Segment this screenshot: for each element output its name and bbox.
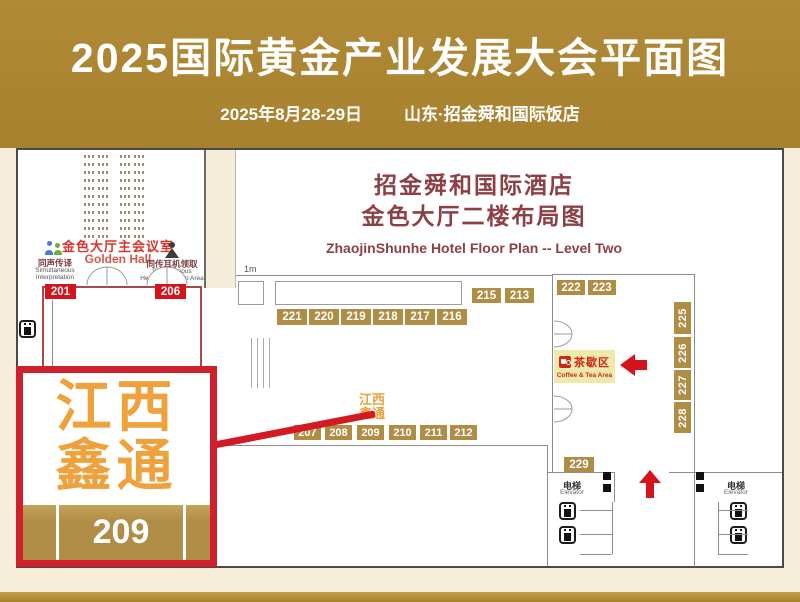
booth-badge-212: 212 [450, 425, 477, 440]
plan-hotel-title: 招金舜和国际酒店 [274, 170, 674, 201]
stairs [251, 338, 272, 388]
booth-badge-226: 226 [674, 337, 691, 368]
audience-seats [84, 155, 148, 243]
elevator-icon [19, 320, 36, 338]
wall-line [614, 472, 615, 502]
plan-floor-title: 金色大厅二楼布局图 [274, 201, 674, 232]
booth-badge-228: 228 [674, 402, 691, 433]
plan-title-block: 招金舜和国际酒店 金色大厅二楼布局图 ZhaojinShunhe Hotel F… [274, 170, 674, 256]
floor-plan: 招金舜和国际酒店 金色大厅二楼布局图 ZhaojinShunhe Hotel F… [16, 148, 784, 568]
poster-page: 2025国际黄金产业发展大会平面图 2025年8月28-29日山东·招金舜和国际… [0, 0, 800, 602]
door-arc-icon [553, 395, 572, 423]
elevator-icon [559, 502, 576, 520]
elevator-label-en: Elevator [560, 489, 584, 496]
poster-title: 2025国际黄金产业发展大会平面图 [0, 24, 800, 84]
wall-line [547, 445, 548, 566]
tea-area-label-cn: 茶歇区 [574, 354, 610, 370]
booth-badge-227: 227 [674, 370, 691, 400]
booth-badge-216: 216 [437, 309, 467, 325]
plan-title-english: ZhaojinShunhe Hotel Floor Plan -- Level … [274, 240, 674, 256]
booth-badge-201: 201 [45, 284, 76, 299]
booth-badge-217: 217 [405, 309, 435, 325]
booth-badge-213: 213 [505, 288, 534, 303]
callout-booth-band: 209 [23, 505, 210, 560]
booth-badge-210: 210 [389, 425, 416, 440]
booth-badge-206: 206 [155, 284, 186, 299]
wall-line [552, 274, 694, 275]
booth-badge-225: 225 [674, 302, 691, 334]
elevator-label-en: Elevator [724, 489, 748, 496]
highlight-callout: 江西 鑫通 209 [16, 366, 217, 567]
wall-line [694, 274, 695, 567]
arrow-up-icon [639, 470, 661, 498]
wall-block [696, 484, 704, 492]
booth-badge-215: 215 [472, 288, 501, 303]
callout-booth-number: 209 [59, 505, 183, 560]
booth-badge-220: 220 [309, 309, 339, 325]
hall-side-corridor [204, 150, 236, 288]
event-date: 2025年8月28-29日 [220, 105, 362, 124]
interpretation-label-en: Simultaneous Interpretation [28, 267, 82, 281]
elevator-icon [559, 526, 576, 544]
elevator-icon [730, 526, 747, 544]
footer-gold-bar [0, 592, 800, 602]
coffee-icon [559, 356, 571, 368]
wall-line [580, 510, 612, 511]
tea-area-label-en: Coffee & Tea Area [554, 372, 615, 379]
wall-line [718, 554, 748, 555]
interpretation-icon [45, 241, 65, 255]
booth-badge-211: 211 [420, 425, 447, 440]
wall-line [580, 554, 612, 555]
header-banner: 2025国际黄金产业发展大会平面图 2025年8月28-29日山东·招金舜和国际… [0, 0, 800, 148]
arrow-left-icon [620, 354, 648, 376]
booth-badge-223: 223 [588, 280, 616, 295]
door-arc-icon [146, 266, 188, 285]
stage-table [275, 281, 462, 305]
tea-break-area: 茶歇区 Coffee & Tea Area [554, 350, 615, 383]
wall-block [603, 472, 611, 480]
booth-badge-208: 208 [325, 425, 352, 440]
wall-line [694, 472, 782, 473]
scale-label: 1m [244, 264, 257, 274]
wall-line [669, 472, 694, 473]
wall-line [612, 502, 613, 554]
door-arc-icon [86, 266, 128, 285]
door-arc-icon [553, 320, 572, 348]
event-venue: 山东·招金舜和国际饭店 [404, 105, 580, 124]
booth-badge-229: 229 [564, 457, 594, 472]
booth-badge-219: 219 [341, 309, 371, 325]
elevator-icon [730, 502, 747, 520]
wall-line [580, 534, 612, 535]
registration-desk [238, 281, 264, 305]
booth-badge-222: 222 [557, 280, 585, 295]
booth-badge-221: 221 [277, 309, 307, 325]
wall-line [718, 510, 748, 511]
booth-badge-209: 209 [357, 425, 384, 440]
booth-badge-218: 218 [373, 309, 403, 325]
wall-block [696, 472, 704, 480]
poster-subtitle: 2025年8月28-29日山东·招金舜和国际饭店 [0, 100, 800, 125]
wall-line [552, 274, 553, 472]
headset-icon [164, 242, 180, 258]
wall-line [718, 534, 748, 535]
wall-block [603, 484, 611, 492]
callout-company-name: 江西 鑫通 [23, 377, 210, 495]
wall-line [236, 275, 552, 276]
